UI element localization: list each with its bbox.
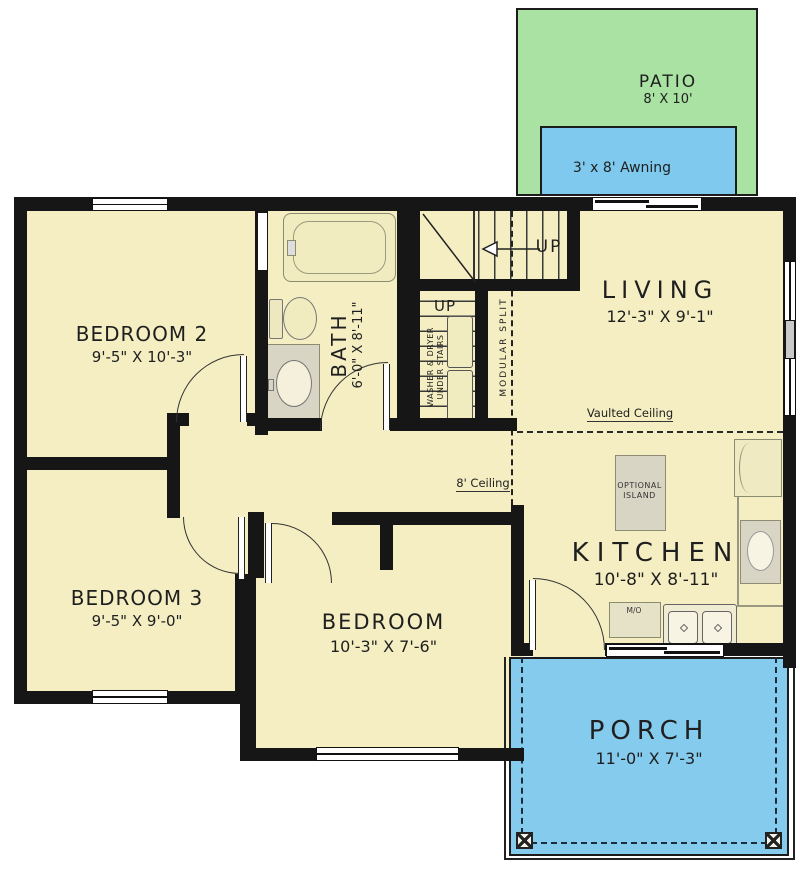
washer-dryer-line1: WASHER & DRYER bbox=[426, 307, 436, 427]
bedroom-dims: 10'-3" X 7'-6" bbox=[256, 637, 511, 656]
wall-closet-stub bbox=[380, 512, 393, 570]
eight-ceiling-label: 8' Ceiling bbox=[433, 477, 533, 491]
window-bedroom3-bottom bbox=[92, 690, 168, 704]
vaulted-ceiling-line bbox=[517, 431, 783, 433]
bath-label: BATH 6'-0" X 8'-11" bbox=[327, 260, 371, 430]
vaulted-ceiling-text: Vaulted Ceiling bbox=[587, 406, 673, 422]
wall-bedroom-divider bbox=[14, 457, 167, 470]
slider-panel-a bbox=[609, 647, 667, 650]
bedroom2-name: BEDROOM 2 bbox=[27, 322, 257, 346]
washer-dryer-label: WASHER & DRYER UNDER STAIRS bbox=[426, 307, 448, 427]
window-bedroom2-top bbox=[92, 198, 168, 211]
washer-dryer-line2: UNDER STAIRS bbox=[436, 307, 446, 427]
porch-label: PORCH 11'-0" X 7'-3" bbox=[511, 716, 787, 768]
slider-panel-b bbox=[646, 205, 698, 208]
window-kitchen-porch bbox=[606, 644, 724, 657]
modular-split-label: MODULAR SPLIT bbox=[499, 287, 511, 407]
porch-roof-edge-right bbox=[793, 657, 795, 858]
optional-island: OPTIONAL ISLAND bbox=[615, 455, 666, 531]
window-bedroom-bottom bbox=[316, 747, 459, 761]
porch-roof-edge-bottom bbox=[504, 858, 795, 860]
floor-plan: PATIO 8' X 10' 3' x 8' Awning PORCH 11'-… bbox=[0, 0, 800, 875]
wall-left bbox=[14, 197, 27, 704]
island-line2: ISLAND bbox=[616, 491, 663, 501]
living-dims: 12'-3" X 9'-1" bbox=[524, 307, 796, 326]
living-name: LIVING bbox=[524, 276, 796, 305]
patio-label: PATIO 8' X 10' bbox=[598, 72, 738, 108]
patio-dims: 8' X 10' bbox=[598, 92, 738, 108]
porch-dims: 11'-0" X 7'-3" bbox=[511, 749, 787, 768]
faucet-left bbox=[680, 624, 688, 632]
bath-dims: 6'-0" X 8'-11" bbox=[351, 260, 367, 430]
kitchen-dims: 10'-8" X 8'-11" bbox=[524, 570, 788, 590]
kitchen-name: KITCHEN bbox=[524, 538, 788, 569]
bedroom-label: BEDROOM 10'-3" X 7'-6" bbox=[256, 610, 511, 656]
door-leaf-bedroom3 bbox=[238, 517, 245, 579]
porch-name: PORCH bbox=[511, 716, 787, 747]
faucet-right bbox=[714, 624, 722, 632]
microwave-cabinet: M/O bbox=[609, 602, 661, 638]
bath-sink bbox=[276, 360, 312, 407]
window-mullion bbox=[93, 696, 167, 698]
porch-post-right bbox=[765, 832, 782, 849]
wall-hall-west bbox=[167, 413, 180, 518]
window-living-right-lower bbox=[784, 358, 796, 416]
wall-bath-bottom-a bbox=[255, 418, 322, 431]
window-mullion bbox=[317, 753, 458, 755]
wall-bedroom-top bbox=[332, 512, 511, 525]
counter-edge-horizontal bbox=[737, 605, 783, 607]
wall-nook-east bbox=[475, 282, 488, 431]
bedroom3-name: BEDROOM 3 bbox=[27, 586, 247, 610]
door-leaf-bedroom bbox=[265, 523, 272, 583]
living-label: LIVING 12'-3" X 9'-1" bbox=[524, 276, 796, 326]
washer bbox=[447, 316, 473, 368]
awning-label: 3' x 8' Awning bbox=[542, 160, 702, 177]
wall-bath-left-notch bbox=[258, 213, 267, 270]
patio-name: PATIO bbox=[598, 72, 738, 92]
bedroom2-label: BEDROOM 2 9'-5" X 10'-3" bbox=[27, 322, 257, 366]
bathtub-faucet bbox=[287, 240, 296, 256]
vaulted-ceiling-label: Vaulted Ceiling bbox=[560, 407, 700, 421]
door-leaf-bath bbox=[383, 364, 390, 430]
wall-stair-stub bbox=[567, 197, 580, 285]
wall-doorway-stub bbox=[248, 512, 264, 578]
refrigerator bbox=[734, 439, 782, 497]
toilet-bowl bbox=[283, 297, 317, 340]
sink-basin-right bbox=[702, 611, 732, 644]
sliding-door-living-patio bbox=[592, 197, 702, 211]
wall-kitchen-west bbox=[511, 505, 524, 655]
bath-name: BATH bbox=[327, 260, 351, 430]
dryer bbox=[447, 370, 473, 422]
bedroom3-label: BEDROOM 3 9'-5" X 9'-0" bbox=[27, 586, 247, 630]
island-line1: OPTIONAL bbox=[616, 481, 663, 491]
wall-bath-bottom-b bbox=[390, 418, 517, 431]
island-label: OPTIONAL ISLAND bbox=[616, 481, 663, 501]
wall-bath-right bbox=[397, 197, 420, 431]
window-mullion-gray bbox=[786, 321, 794, 358]
microwave-label: M/O bbox=[610, 606, 658, 615]
bath-faucet bbox=[268, 379, 274, 391]
toilet-tank bbox=[269, 299, 283, 339]
window-mullion bbox=[93, 204, 167, 206]
modular-split-line bbox=[511, 211, 513, 515]
bedroom-name: BEDROOM bbox=[256, 610, 511, 635]
refrigerator-door-arc bbox=[739, 443, 759, 493]
eight-ceiling-text: 8' Ceiling bbox=[456, 476, 509, 492]
porch-post-left bbox=[516, 832, 533, 849]
bedroom2-dims: 9'-5" X 10'-3" bbox=[27, 348, 257, 366]
bedroom3-dims: 9'-5" X 9'-0" bbox=[27, 612, 247, 630]
kitchen-label: KITCHEN 10'-8" X 8'-11" bbox=[524, 538, 788, 591]
stair-rail-line bbox=[473, 211, 475, 281]
window-mullion bbox=[789, 359, 791, 415]
awning-area: 3' x 8' Awning bbox=[540, 126, 737, 196]
bath-vanity bbox=[266, 344, 320, 426]
slider-panel-a bbox=[595, 200, 649, 203]
sink-basin-left bbox=[668, 611, 698, 644]
slider-panel-b bbox=[664, 651, 720, 654]
porch-area: PORCH 11'-0" X 7'-3" bbox=[509, 657, 789, 856]
